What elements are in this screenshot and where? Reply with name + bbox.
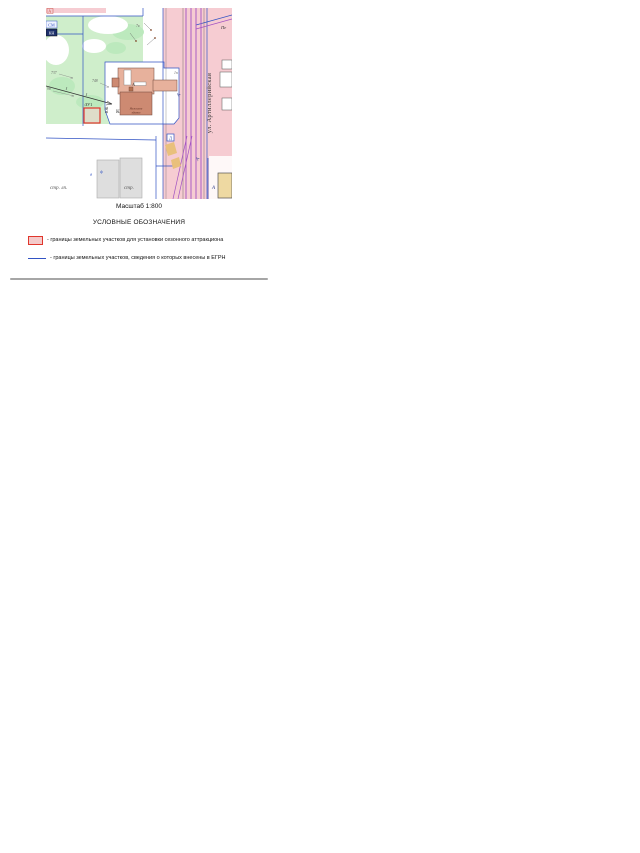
label-98: 98: [47, 87, 51, 91]
corner-a-label: А: [48, 9, 51, 14]
legend-item-text: - границы земельных участков для установ…: [47, 237, 223, 243]
legend-title: УСЛОВНЫЕ ОБОЗНАЧЕНИЯ: [46, 219, 232, 226]
divider: [10, 278, 268, 280]
legend-item-text: - границы земельных участков, сведения о…: [50, 255, 226, 261]
page: :ЗУ1 А СМ КН 7в 737 98 748 1п К ЮК: [0, 0, 640, 853]
sm-label: СМ: [48, 23, 55, 28]
red-rect-symbol: [28, 236, 43, 245]
building-name-line2: здание: [131, 111, 142, 115]
label-str-lp: стр. лп.: [50, 185, 67, 191]
label-g-f: ф: [100, 169, 103, 174]
blue-line-symbol: [28, 258, 46, 259]
label-yuk: ЮК: [104, 106, 109, 113]
seasonal-plot-outline: [84, 108, 100, 123]
label-k: К: [116, 109, 120, 115]
label-1p: 1п: [174, 71, 178, 75]
d-box-label: Д: [169, 136, 172, 141]
map-canvas: :ЗУ1 А СМ КН 7в 737 98 748 1п К ЮК: [46, 8, 232, 199]
legend-item-seasonal-plot: - границы земельных участков для установ…: [28, 234, 223, 246]
map-figure: :ЗУ1 А СМ КН 7в 737 98 748 1п К ЮК: [46, 8, 232, 199]
legend-item-egrn-boundaries: - границы земельных участков, сведения о…: [28, 252, 226, 264]
label-748: 748: [92, 79, 98, 83]
scale-caption: Масштаб 1:800: [46, 203, 232, 210]
label-g-d: д: [90, 172, 92, 177]
d-box-symbol: Д: [167, 134, 174, 141]
label-a-building: А: [131, 82, 135, 87]
seasonal-plot-label: :ЗУ1: [84, 102, 92, 107]
kn-label: КН: [49, 31, 55, 36]
street-label: ул. Артиллерийская: [206, 73, 213, 133]
label-str: стр.: [124, 185, 134, 191]
label-7v: 7в: [136, 24, 140, 28]
label-pe: Пе: [220, 25, 226, 30]
